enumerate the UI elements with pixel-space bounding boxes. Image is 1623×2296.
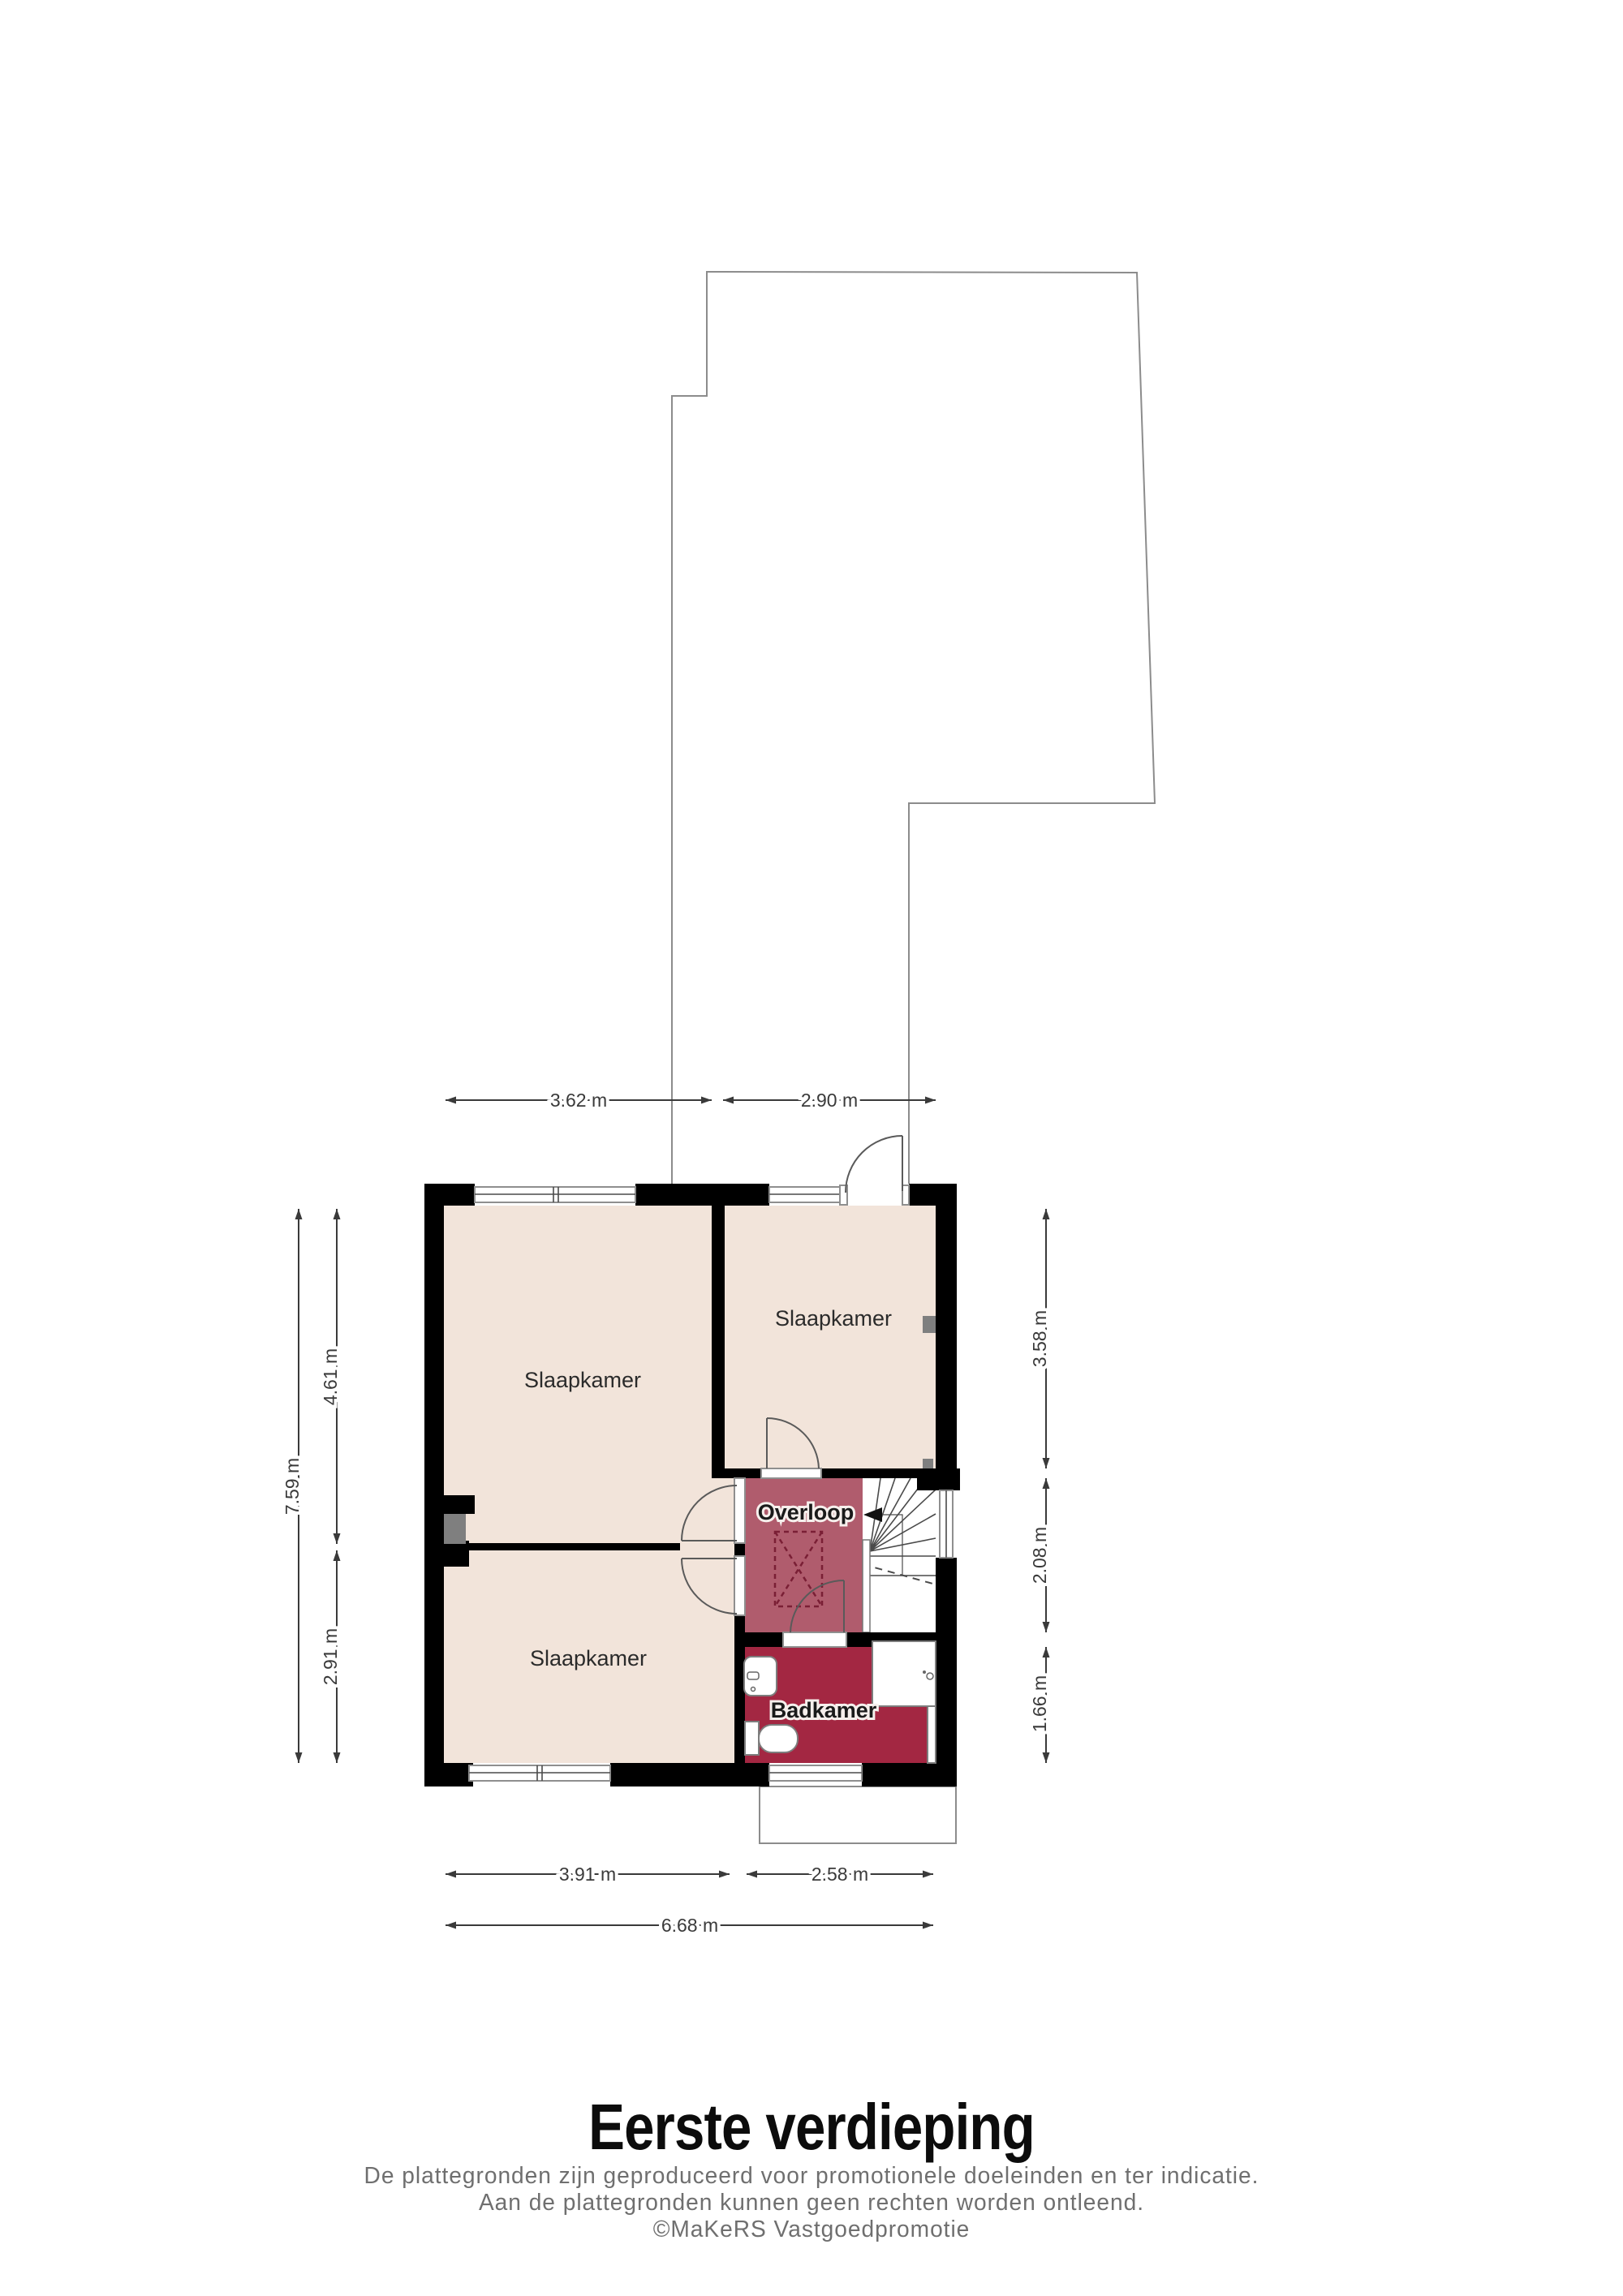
disclaimer-line-3: ©MaKeRS Vastgoedpromotie (24, 2216, 1599, 2243)
dim-right-middle: 2.08 m (1029, 1527, 1050, 1584)
disclaimer-line-1: De plattegronden zijn geproduceerd voor … (24, 2163, 1599, 2190)
window-top-left (475, 1187, 635, 1202)
duct-left (444, 1514, 466, 1544)
dim-bottom-left: 3.91 m (559, 1864, 616, 1885)
dim-bottom-total: 6.68 m (661, 1915, 718, 1936)
dim-top-left: 3.62 m (550, 1090, 607, 1111)
door-roof-terrace (840, 1136, 909, 1205)
dim-left-lower: 2.91 m (320, 1628, 341, 1685)
floor-plan: Slaapkamer Slaapkamer Slaapkamer Overloo… (0, 0, 1623, 2296)
label-bedroom-top-left: Slaapkamer (524, 1368, 641, 1392)
floorplan-page: Slaapkamer Slaapkamer Slaapkamer Overloo… (0, 0, 1623, 2296)
dim-bottom-right: 2.58 m (811, 1864, 868, 1885)
toilet (745, 1722, 798, 1755)
label-landing: Overloop (758, 1500, 855, 1524)
upper-roof-edge (672, 272, 1155, 1184)
room-fills (444, 1206, 936, 1763)
label-bedroom-right: Slaapkamer (775, 1306, 892, 1331)
disclaimer-line-2: Aan de plattegronden kunnen geen rechten… (24, 2190, 1599, 2216)
label-bathroom: Badkamer (771, 1698, 877, 1722)
window-bottom-left (469, 1765, 610, 1781)
label-bedroom-bottom-left: Slaapkamer (530, 1646, 647, 1670)
window-top-right (769, 1187, 840, 1202)
stair-railing (863, 1540, 870, 1632)
sink (744, 1657, 777, 1696)
stairs-floor (863, 1478, 936, 1632)
dim-right-upper: 3.58 m (1029, 1310, 1050, 1367)
window-bathroom (769, 1765, 862, 1781)
window-right-wall (940, 1490, 953, 1558)
dim-left-total: 7.59 m (282, 1458, 303, 1515)
dim-top-right: 2.90 m (801, 1090, 858, 1111)
duct-right-lower (923, 1459, 933, 1468)
dim-right-lower: 1.66 m (1029, 1675, 1050, 1732)
duct-right-upper (923, 1316, 936, 1333)
lower-roof-edge (760, 1786, 956, 1843)
page-title: Eerste verdieping (130, 2090, 1493, 2165)
dim-left-upper: 4.61 m (320, 1348, 341, 1405)
